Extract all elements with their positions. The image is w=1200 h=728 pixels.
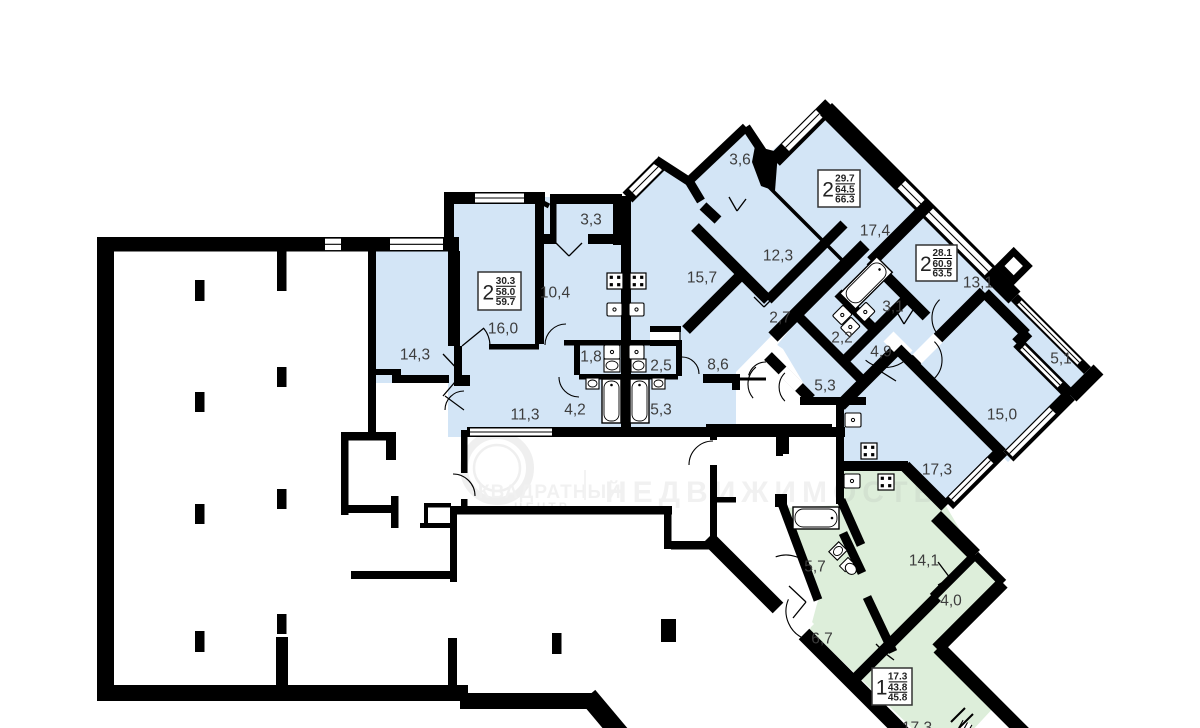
svg-text:КВАДРАТНЫЙ: КВАДРАТНЫЙ [478,481,622,503]
svg-text:28.1: 28.1 [932,248,952,259]
svg-text:15,7: 15,7 [687,270,717,287]
svg-text:14,3: 14,3 [400,347,430,364]
svg-text:12,3: 12,3 [763,248,793,265]
svg-text:17.3: 17.3 [888,672,908,683]
svg-text:3,6: 3,6 [729,152,751,169]
svg-text:5,7: 5,7 [804,559,826,576]
svg-text:4,9: 4,9 [870,344,892,361]
svg-text:66.3: 66.3 [835,194,855,205]
svg-text:2: 2 [822,179,834,202]
svg-text:1: 1 [876,677,888,700]
svg-text:1,8: 1,8 [580,349,602,366]
svg-text:2,5: 2,5 [650,358,672,375]
svg-text:17,3: 17,3 [922,462,952,479]
svg-text:10,4: 10,4 [540,285,571,302]
svg-text:8,6: 8,6 [707,357,729,374]
svg-text:63.5: 63.5 [932,269,952,280]
svg-text:30.3: 30.3 [496,276,516,287]
svg-text:2: 2 [482,281,494,304]
svg-text:5,3: 5,3 [650,402,672,419]
svg-text:13,1: 13,1 [963,275,993,292]
svg-text:3,3: 3,3 [580,212,602,229]
svg-text:15,0: 15,0 [987,407,1018,424]
svg-text:5,3: 5,3 [814,378,836,395]
svg-text:4,2: 4,2 [564,402,586,419]
svg-text:16,0: 16,0 [488,321,519,338]
svg-text:5,1: 5,1 [1050,351,1072,368]
svg-text:11,3: 11,3 [510,407,539,424]
svg-text:45.8: 45.8 [888,692,908,703]
svg-text:2,7: 2,7 [769,310,791,327]
svg-text:17,4: 17,4 [860,223,891,240]
svg-text:14,1: 14,1 [909,553,939,570]
svg-text:17,3: 17,3 [902,720,932,728]
svg-text:3,1: 3,1 [882,299,904,316]
svg-text:6,7: 6,7 [811,631,833,648]
svg-text:4,0: 4,0 [940,593,962,610]
svg-text:29.7: 29.7 [835,174,855,185]
svg-text:59.7: 59.7 [496,297,516,308]
svg-text:2: 2 [920,253,932,276]
svg-text:2,2: 2,2 [831,330,853,347]
